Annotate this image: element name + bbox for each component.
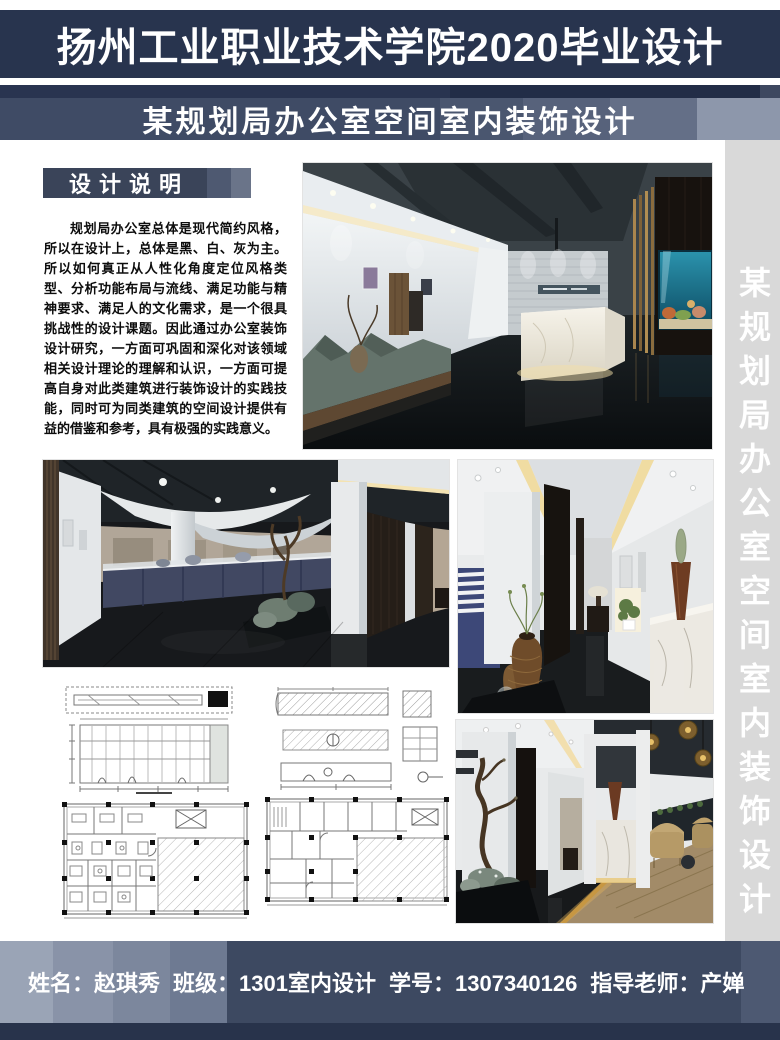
cad-plan2-art [262,793,452,907]
cad-elevation-drawing [58,683,246,795]
cad-elevation-art [58,683,246,795]
header-divider [0,78,780,85]
render-corridor-display [458,460,713,713]
footer-credits: 姓名：赵琪秀 班级：1301室内设计 学号：1307340126 指导老师：产婵 [0,941,780,1023]
wood-panel [389,273,409,335]
design-note-paragraph: 规划局办公室总体是现代简约风格，所以在设计上，总体是黑、白、灰为主。所以如何真正… [44,219,287,439]
hatched-area [357,838,447,901]
strip-segment [760,85,780,98]
side-vertical-banner: 某规划局办公室空间室内装饰设计 [725,140,780,941]
reception-render-art [303,163,712,449]
cad-detail-drawing [263,685,450,793]
dark-wood-panel [544,484,570,666]
cad-details-art [263,685,450,793]
cad-layout-floor-plan [262,793,452,907]
render-reception-lobby [303,163,712,449]
render-corridor-lounge [456,720,713,923]
badge-extension-block [231,168,251,198]
marble-cabinet [596,820,636,882]
poster-title: 扬州工业职业技术学院2020毕业设计 [57,15,724,73]
design-note-badge: 设计说明 [43,168,207,198]
student-number: 学号：1307340126 [389,966,577,998]
corridor2-render-art [456,720,713,923]
render-open-office [43,460,449,667]
side-vertical-title: 某规划局办公室空间室内装饰设计 [725,266,780,926]
graduation-design-poster: 扬州工业职业技术学院2020毕业设计 某规划局办公室空间室内装饰设计 某规划局办… [0,0,780,1040]
subtitle-banner: 某规划局办公室空间室内装饰设计 [0,98,780,140]
footer-bar: 姓名：赵琪秀 班级：1301室内设计 学号：1307340126 指导老师：产婵 [0,941,780,1023]
office-render-art [43,460,449,667]
student-name: 姓名：赵琪秀 [28,966,160,998]
sculpture [676,529,686,563]
header-bar: 扬州工业职业技术学院2020毕业设计 [0,10,780,78]
project-subtitle: 某规划局办公室空间室内装饰设计 [0,98,780,140]
advisor-info: 指导老师：产婵 [590,966,744,998]
title-block [208,691,228,707]
portal-frame [584,730,650,888]
corridor1-render-art [458,460,713,713]
hatched-area [158,838,244,911]
cad-plan1-art [58,798,253,920]
bottom-strip [0,1023,780,1040]
class-info: 班级：1301室内设计 [173,966,376,998]
furniture [70,814,152,902]
badge-extension-block [207,168,231,198]
wall-artwork [363,267,378,289]
design-note-heading: 设计说明 [61,167,189,199]
cad-furnished-floor-plan [58,798,253,920]
